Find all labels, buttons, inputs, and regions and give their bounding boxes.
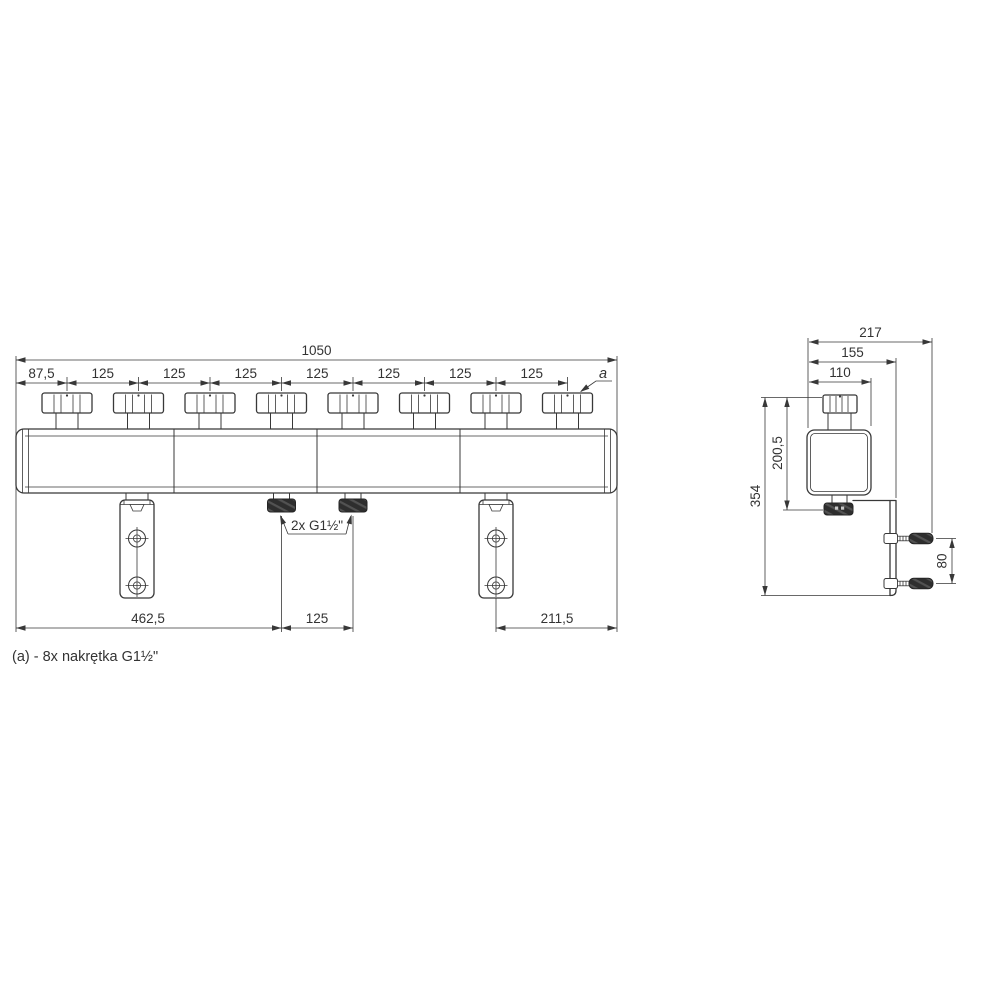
dim-pitch-row: 87,5 125 125 125 125 125 125 125	[16, 366, 568, 386]
union-nut	[543, 393, 593, 429]
dim-total-depth: 217	[809, 325, 932, 345]
outlet-connector-side	[824, 503, 853, 515]
union-nut	[185, 393, 235, 429]
dim-total-height-value: 354	[748, 484, 763, 507]
union-nut	[42, 393, 92, 429]
outlet-callout: 2x G1½"	[277, 514, 354, 534]
dim-bottom-row: 462,5 125 211,5	[16, 611, 617, 631]
drawing-page: 1050 87,5 125 125 125 125 125 125 125	[0, 0, 1000, 1000]
dim-total-depth-value: 217	[859, 325, 882, 340]
side-view: 217 155 110 354 200,5 80	[748, 325, 956, 596]
dim-bracket-depth-value: 155	[841, 345, 864, 360]
dim-total-height: 354	[748, 398, 768, 596]
dim-pitch-5: 125	[378, 366, 401, 381]
dim-pitch-2: 125	[163, 366, 186, 381]
dim-pitch-7: 125	[521, 366, 544, 381]
dim-first-offset: 87,5	[28, 366, 54, 381]
dim-body-height: 200,5	[770, 398, 790, 511]
dim-anchor-spacing-value: 80	[935, 553, 950, 568]
dim-bracket-to-end: 211,5	[541, 611, 574, 626]
connector-detail-dot	[835, 507, 838, 510]
union-nut	[328, 393, 378, 429]
footnote: (a) - 8x nakrętka G1½"	[12, 649, 158, 665]
manifold-body-side	[807, 395, 871, 515]
dim-body-width: 110	[809, 365, 871, 385]
union-nut	[400, 393, 450, 429]
dim-overall-length: 1050	[16, 343, 617, 363]
dim-pitch-3: 125	[235, 366, 258, 381]
dim-body-width-value: 110	[829, 365, 851, 380]
union-nut	[471, 393, 521, 429]
anchor-screw-lower	[884, 578, 933, 589]
dim-left-to-outlet: 462,5	[131, 611, 165, 626]
callout-a-label: a	[599, 366, 607, 382]
dim-body-height-value: 200,5	[770, 436, 785, 470]
extension-lines-front	[16, 356, 617, 632]
dim-anchor-spacing: 80	[935, 539, 955, 584]
connector-detail-dot	[841, 507, 844, 510]
dim-overall-length-value: 1050	[301, 343, 331, 358]
union-nut	[257, 393, 307, 429]
dim-pitch-4: 125	[306, 366, 329, 381]
dim-pitch-1: 125	[92, 366, 115, 381]
union-nut-side	[823, 395, 857, 413]
union-nut	[114, 393, 164, 429]
dim-outlet-pitch: 125	[306, 611, 329, 626]
outlet-callout-label: 2x G1½"	[291, 518, 343, 533]
anchor-screw-upper	[884, 533, 933, 544]
mounting-bracket-left	[120, 493, 154, 598]
union-nuts-row	[42, 393, 593, 429]
dim-bracket-depth: 155	[809, 345, 896, 365]
outlet-connector-left	[268, 493, 296, 512]
mounting-bracket-right	[479, 493, 513, 598]
technical-drawing: 1050 87,5 125 125 125 125 125 125 125	[0, 0, 1000, 1000]
dim-pitch-6: 125	[449, 366, 472, 381]
manifold-body-front	[16, 429, 617, 493]
callout-a: a	[578, 366, 612, 394]
outlet-connector-right	[339, 493, 367, 512]
front-view: 1050 87,5 125 125 125 125 125 125 125	[16, 343, 617, 632]
